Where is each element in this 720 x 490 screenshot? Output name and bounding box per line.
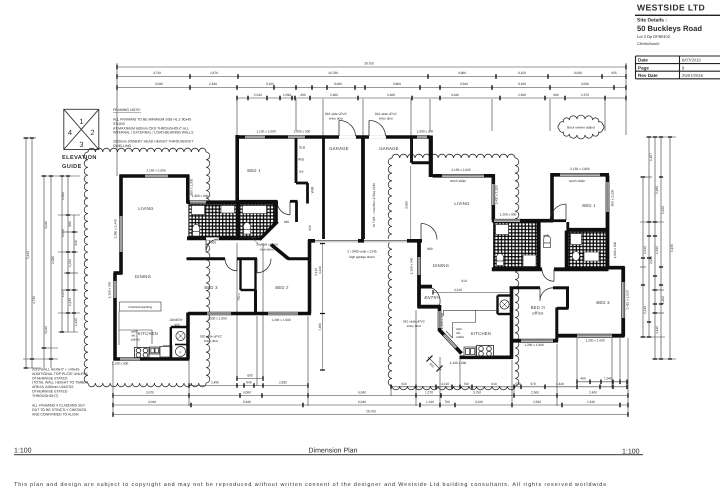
svg-text:1,219: 1,219 [68, 259, 72, 267]
svg-text:BED 1: BED 1 [582, 203, 596, 208]
svg-text:KITCHEN: KITCHEN [138, 331, 158, 336]
svg-text:5,410: 5,410 [643, 306, 647, 314]
svg-text:8,940: 8,940 [243, 400, 251, 404]
svg-text:OUT TO BE STRICTLY CHECKED: OUT TO BE STRICTLY CHECKED [32, 408, 87, 412]
svg-text:covered opening: covered opening [128, 305, 152, 309]
svg-text:3,040: 3,040 [44, 326, 48, 334]
svg-text:JOINERY: JOINERY [169, 318, 184, 322]
svg-text:3: 3 [79, 140, 83, 149]
svg-text:1,270: 1,270 [425, 390, 433, 394]
svg-text:DWELLING: DWELLING [113, 144, 132, 148]
svg-text:2,180: 2,180 [655, 186, 659, 194]
svg-text:1,380 x 1,440: 1,380 x 1,440 [114, 219, 118, 239]
svg-text:2: 2 [90, 128, 94, 137]
svg-text:WIR: WIR [543, 234, 550, 238]
svg-text:Rev Date: Rev Date [638, 73, 658, 78]
svg-text:880: 880 [427, 247, 433, 251]
svg-text:3,380: 3,380 [458, 71, 466, 75]
svg-text:ELEVATION: ELEVATION [62, 155, 97, 161]
svg-text:AREAS 2460mm UNLESS: AREAS 2460mm UNLESS [32, 385, 74, 389]
svg-text:2,150 x 2,605: 2,150 x 2,605 [146, 169, 166, 173]
svg-text:3,060: 3,060 [334, 82, 342, 86]
svg-text:WIR: WIR [311, 186, 315, 193]
svg-text:2,420: 2,420 [661, 206, 665, 214]
svg-text:10,780: 10,780 [328, 71, 338, 75]
svg-text:940: 940 [284, 220, 290, 224]
svg-text:1,100: 1,100 [661, 296, 665, 304]
svg-text:ranch slider: ranch slider [450, 179, 467, 183]
svg-text:office: office [532, 311, 544, 316]
svg-text:STUDS: STUDS [113, 122, 126, 126]
svg-text:1,060: 1,060 [61, 229, 65, 237]
svg-text:1,100 x 900: 1,100 x 900 [112, 362, 129, 366]
svg-text:ALL FRAMING 4 CLADDING SET-: ALL FRAMING 4 CLADDING SET- [32, 404, 87, 408]
svg-text:9,130: 9,130 [670, 244, 674, 252]
svg-text:1,467: 1,467 [649, 153, 653, 161]
svg-text:SLB: SLB [299, 146, 305, 150]
svg-text:1: 1 [79, 117, 83, 126]
svg-text:900: 900 [553, 93, 559, 97]
svg-text:2,900: 2,900 [531, 390, 539, 394]
svg-text:2000mm JOINERY HEAD HEIGHT THR: 2000mm JOINERY HEAD HEIGHT THROUGHOUT [113, 140, 194, 144]
svg-text:6,040: 6,040 [358, 390, 366, 394]
svg-text:AND CONFIRMED TO ALIGN: AND CONFIRMED TO ALIGN [32, 412, 79, 416]
svg-text:ADDITIONAL TOP PLATE UNLESS: ADDITIONAL TOP PLATE UNLESS [32, 372, 88, 376]
svg-text:840: 840 [246, 381, 252, 385]
svg-text:Skylight vented: Skylight vented [256, 243, 278, 247]
svg-text:ENTRY: ENTRY [424, 295, 440, 300]
svg-text:2 / 2400 wide x 2145: 2 / 2400 wide x 2145 [347, 250, 377, 254]
svg-text:KITCHEN: KITCHEN [471, 331, 491, 336]
svg-text:8/07/2013: 8/07/2013 [682, 58, 701, 63]
svg-text:W TGB - crossflow 170sq 2230: W TGB - crossflow 170sq 2230 [372, 183, 376, 227]
svg-text:1,000 x 900: 1,000 x 900 [417, 130, 434, 134]
svg-text:1,090: 1,090 [283, 93, 291, 97]
svg-text:2,830: 2,830 [279, 381, 287, 385]
svg-text:600 x 2,300: 600 x 2,300 [190, 178, 194, 195]
svg-text:Page: Page [638, 65, 649, 70]
svg-text:4: 4 [68, 128, 72, 137]
svg-text:dry: dry [299, 170, 304, 174]
svg-text:BED 2/: BED 2/ [531, 305, 546, 310]
svg-text:1,000 x 900: 1,000 x 900 [294, 130, 311, 134]
svg-text:BED 3: BED 3 [596, 300, 610, 305]
svg-text:960: 960 [174, 323, 180, 327]
svg-text:760: 760 [463, 382, 469, 386]
svg-text:1,200 x 1,000: 1,200 x 1,000 [207, 317, 227, 321]
svg-text:910: 910 [211, 241, 217, 245]
svg-text:3,140: 3,140 [314, 268, 318, 276]
svg-text:entry door: entry door [329, 117, 344, 121]
svg-text:880: 880 [68, 221, 72, 227]
svg-text:2,480: 2,480 [211, 381, 219, 385]
svg-text:600: 600 [247, 374, 253, 378]
svg-text:entry door: entry door [204, 339, 219, 343]
svg-text:3,220: 3,220 [475, 400, 483, 404]
svg-text:under: under [456, 335, 465, 339]
svg-text:4,140: 4,140 [318, 266, 322, 274]
svg-text:1,190: 1,190 [426, 400, 434, 404]
svg-text:3,340: 3,340 [460, 82, 468, 86]
svg-text:GARAGE: GARAGE [329, 146, 348, 151]
svg-text:2,010: 2,010 [649, 256, 653, 264]
svg-text:910 wide uPVC: 910 wide uPVC [403, 320, 426, 324]
svg-text:4,210: 4,210 [454, 288, 462, 292]
svg-text:25/07/2016: 25/07/2016 [682, 73, 704, 78]
svg-text:AT MAXIMUM 600mm CRS THROUGHOU: AT MAXIMUM 600mm CRS THROUGHOUT ALL [113, 126, 189, 130]
svg-text:600 x 2,100: 600 x 2,100 [611, 189, 615, 206]
svg-text:GUIDE: GUIDE [62, 164, 82, 170]
svg-text:LIVING: LIVING [138, 206, 153, 211]
svg-text:3,020: 3,020 [581, 82, 589, 86]
svg-text:1,190 x 940: 1,190 x 940 [410, 257, 414, 274]
svg-text:ALL FRAMING TO BE MINIMUM SG8: ALL FRAMING TO BE MINIMUM SG8 H1.2 90x45 [113, 118, 191, 122]
svg-text:pantry: pantry [131, 338, 140, 342]
svg-text:2,900: 2,900 [518, 93, 526, 97]
svg-text:2,430: 2,430 [209, 82, 217, 86]
svg-text:OTHERWISE STATED: OTHERWISE STATED [32, 390, 68, 394]
svg-text:F: F [180, 350, 182, 354]
svg-text:28,700: 28,700 [366, 409, 376, 413]
svg-text:1,400 x 2,100: 1,400 x 2,100 [495, 185, 499, 205]
svg-text:Christchurch: Christchurch [637, 41, 659, 46]
svg-text:310: 310 [74, 240, 78, 246]
svg-text:3,860: 3,860 [393, 82, 401, 86]
svg-text:DINING: DINING [433, 263, 449, 268]
svg-text:810: 810 [308, 225, 312, 231]
svg-text:3,940: 3,940 [451, 93, 459, 97]
svg-text:1,190 x 940: 1,190 x 940 [108, 281, 112, 298]
svg-text:2,870: 2,870 [210, 71, 218, 75]
svg-text:to exterior: to exterior [260, 248, 275, 252]
svg-text:2,590: 2,590 [533, 400, 541, 404]
svg-text:Brick veneer added: Brick veneer added [567, 126, 595, 130]
svg-text:700: 700 [444, 400, 450, 404]
svg-text:970: 970 [530, 382, 536, 386]
svg-text:BED 1: BED 1 [247, 168, 261, 173]
svg-text:2,410 x 1,010: 2,410 x 1,010 [626, 290, 630, 310]
svg-text:1,100 x 2,000: 1,100 x 2,000 [256, 130, 276, 134]
svg-text:3,720: 3,720 [153, 71, 161, 75]
svg-text:Site Details :: Site Details : [637, 18, 667, 24]
svg-text:LIVING: LIVING [454, 201, 469, 206]
svg-text:2,410: 2,410 [643, 246, 647, 254]
svg-text:2,150 x 2,860: 2,150 x 2,860 [570, 167, 590, 171]
svg-text:4,730: 4,730 [32, 296, 36, 304]
svg-text:2,400: 2,400 [589, 390, 597, 394]
svg-text:(TOTAL WALL HEIGHT TO TIMBER: (TOTAL WALL HEIGHT TO TIMBER [32, 381, 89, 385]
svg-text:DINING: DINING [135, 274, 151, 279]
svg-text:Lot 3 Dp DP80402: Lot 3 Dp DP80402 [637, 34, 671, 39]
svg-text:400: 400 [580, 377, 586, 381]
svg-text:1,200 x 1,000: 1,200 x 1,000 [585, 339, 605, 343]
svg-text:7,480: 7,480 [318, 323, 322, 331]
svg-text:2,600: 2,600 [387, 93, 395, 97]
svg-text:3,020: 3,020 [574, 71, 582, 75]
svg-text:WESTSIDE LTD: WESTSIDE LTD [637, 3, 705, 13]
svg-text:3,040: 3,040 [155, 82, 163, 86]
svg-text:910 wide uPVC: 910 wide uPVC [200, 335, 223, 339]
svg-text:1,540: 1,540 [587, 400, 595, 404]
svg-text:3,970: 3,970 [146, 390, 154, 394]
svg-text:910: 910 [401, 382, 407, 386]
svg-text:BED 3: BED 3 [204, 285, 218, 290]
svg-text:2,980: 2,980 [51, 256, 55, 264]
svg-text:entry door: entry door [379, 117, 394, 121]
svg-text:2,010: 2,010 [254, 93, 262, 97]
svg-text:1,200 x 900: 1,200 x 900 [500, 213, 517, 217]
svg-text:5,440: 5,440 [26, 251, 30, 259]
svg-text:1,940: 1,940 [604, 377, 612, 381]
svg-text:2,000: 2,000 [61, 192, 65, 200]
svg-text:910: 910 [491, 382, 497, 386]
svg-text:W/D: W/D [298, 158, 305, 162]
svg-text:1,110: 1,110 [655, 326, 659, 334]
svg-text:high garage doors: high garage doors [349, 255, 375, 259]
svg-text:810 wide uPVC: 810 wide uPVC [375, 112, 398, 116]
svg-text:910: 910 [461, 279, 467, 283]
svg-text:3,180: 3,180 [518, 82, 526, 86]
svg-text:750 x: 750 x [237, 293, 241, 301]
svg-text:4,210: 4,210 [441, 382, 449, 386]
svg-text:810 wide uPVC: 810 wide uPVC [325, 112, 348, 116]
svg-text:2,370: 2,370 [581, 93, 589, 97]
svg-text:1,270: 1,270 [61, 289, 65, 297]
svg-text:600: 600 [300, 93, 306, 97]
svg-text:1,190 x 940: 1,190 x 940 [440, 312, 444, 329]
svg-text:9,080: 9,080 [243, 390, 251, 394]
svg-text:3,750: 3,750 [473, 390, 481, 394]
svg-text:GARAGE: GARAGE [379, 146, 398, 151]
svg-text:This plan and design are subje: This plan and design are subject to copy… [14, 482, 607, 488]
svg-text:3,060: 3,060 [405, 201, 409, 209]
svg-text:Date: Date [638, 58, 648, 63]
svg-text:1,200 x 1,900: 1,200 x 1,900 [271, 318, 291, 322]
svg-text:ranch slider: ranch slider [569, 179, 586, 183]
svg-text:28,700: 28,700 [364, 62, 374, 66]
svg-text:2,900: 2,900 [330, 93, 338, 97]
svg-text:4,040: 4,040 [148, 400, 156, 404]
svg-text:3,040: 3,040 [44, 221, 48, 229]
svg-text:BED 2: BED 2 [275, 285, 289, 290]
svg-text:50 Buckleys Road: 50 Buckleys Road [637, 24, 702, 33]
svg-text:Dimension Plan: Dimension Plan [308, 447, 357, 455]
svg-text:530: 530 [515, 382, 521, 386]
svg-text:1,600 x 600: 1,600 x 600 [613, 241, 617, 258]
svg-text:925: 925 [611, 71, 617, 75]
svg-text:INTERNAL / EXTERNAL / LOAD-BEA: INTERNAL / EXTERNAL / LOAD-BEARING WALLS [113, 131, 194, 135]
svg-text:entry door: entry door [407, 324, 422, 328]
svg-text:OTHERWISE STATED: OTHERWISE STATED [32, 376, 68, 380]
svg-text:1,310: 1,310 [655, 246, 659, 254]
svg-text:1,300 x 600: 1,300 x 600 [192, 194, 209, 198]
svg-text:3,150: 3,150 [518, 71, 526, 75]
svg-text:1:100: 1:100 [14, 448, 32, 455]
svg-text:1,130: 1,130 [68, 298, 72, 306]
svg-text:2,150 x 2,605: 2,150 x 2,605 [451, 168, 471, 172]
svg-text:3,100: 3,100 [266, 82, 274, 86]
svg-text:1,100 x 900: 1,100 x 900 [450, 361, 467, 365]
svg-text:6,040: 6,040 [358, 400, 366, 404]
svg-text:1,200 x 1,900: 1,200 x 1,900 [524, 343, 544, 347]
svg-text:1,140: 1,140 [74, 318, 78, 326]
svg-text:THROUGHOUT): THROUGHOUT) [32, 394, 58, 398]
